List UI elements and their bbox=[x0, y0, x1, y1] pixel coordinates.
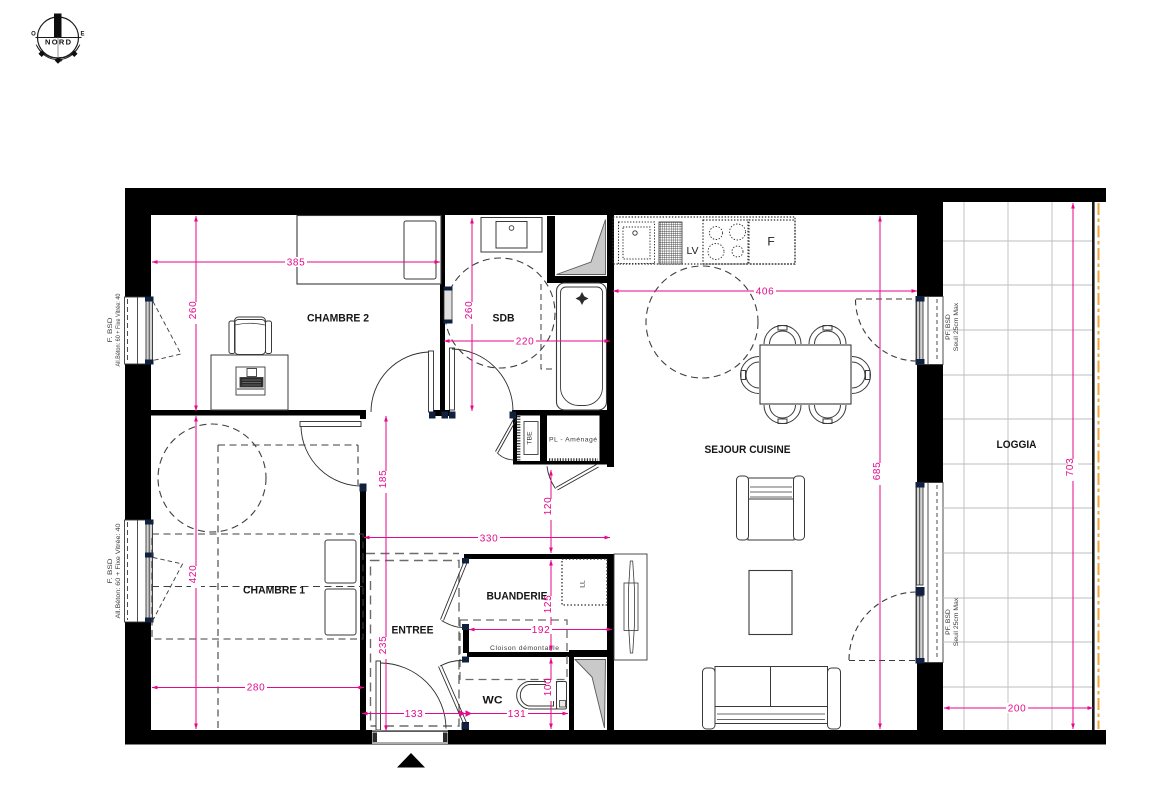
svg-text:BUANDERIE: BUANDERIE bbox=[487, 591, 548, 603]
svg-text:F. BSD: F. BSD bbox=[107, 317, 114, 342]
svg-text:O: O bbox=[31, 32, 36, 38]
svg-text:125: 125 bbox=[543, 595, 554, 614]
svg-text:235: 235 bbox=[378, 636, 389, 655]
svg-text:PF. BSD: PF. BSD bbox=[945, 609, 952, 635]
svg-text:260: 260 bbox=[464, 301, 475, 320]
svg-text:All.Béton: 60 + Fixe Vitrée: 4: All.Béton: 60 + Fixe Vitrée: 40 bbox=[115, 293, 122, 366]
svg-text:100: 100 bbox=[543, 678, 554, 697]
svg-text:SDB: SDB bbox=[493, 313, 515, 325]
svg-text:SEJOUR CUISINE: SEJOUR CUISINE bbox=[705, 444, 791, 456]
svg-text:260: 260 bbox=[188, 301, 199, 320]
svg-text:S: S bbox=[58, 58, 62, 64]
svg-text:280: 280 bbox=[247, 683, 266, 694]
svg-text:PL - Aménagé: PL - Aménagé bbox=[549, 437, 597, 444]
svg-text:185: 185 bbox=[378, 470, 389, 489]
svg-text:120: 120 bbox=[543, 497, 554, 516]
svg-text:385: 385 bbox=[287, 258, 306, 269]
svg-text:NORD: NORD bbox=[45, 38, 72, 47]
svg-text:192: 192 bbox=[532, 625, 551, 636]
svg-text:CHAMBRE 2: CHAMBRE 2 bbox=[307, 313, 369, 325]
svg-text:131: 131 bbox=[508, 709, 527, 720]
svg-text:WC: WC bbox=[483, 695, 503, 707]
svg-text:PF. BSD: PF. BSD bbox=[945, 314, 952, 340]
svg-text:703: 703 bbox=[1065, 458, 1076, 477]
svg-text:F. BSD: F. BSD bbox=[107, 558, 114, 583]
svg-text:330: 330 bbox=[480, 534, 499, 545]
svg-text:685: 685 bbox=[872, 462, 883, 481]
svg-text:CHAMBRE 1: CHAMBRE 1 bbox=[243, 585, 305, 597]
svg-text:TBE: TBE bbox=[527, 431, 534, 445]
svg-text:420: 420 bbox=[188, 565, 199, 584]
svg-text:LV: LV bbox=[686, 245, 698, 257]
svg-text:ENTREE: ENTREE bbox=[392, 625, 434, 637]
svg-text:E: E bbox=[80, 32, 84, 38]
svg-text:Seuil 25cm Max: Seuil 25cm Max bbox=[953, 302, 960, 351]
svg-text:All.Béton: 60 + Fixe Vitrée: 4: All.Béton: 60 + Fixe Vitrée: 40 bbox=[115, 523, 122, 618]
svg-text:220: 220 bbox=[516, 337, 535, 348]
svg-text:LOGGIA: LOGGIA bbox=[997, 439, 1037, 451]
svg-text:LL: LL bbox=[580, 580, 587, 588]
svg-text:133: 133 bbox=[405, 709, 424, 720]
svg-text:Cloison démontable: Cloison démontable bbox=[490, 645, 559, 652]
svg-text:F: F bbox=[767, 235, 774, 249]
svg-text:406: 406 bbox=[756, 287, 775, 298]
svg-text:Seuil 25cm Max: Seuil 25cm Max bbox=[953, 597, 960, 646]
svg-text:200: 200 bbox=[1008, 704, 1027, 715]
